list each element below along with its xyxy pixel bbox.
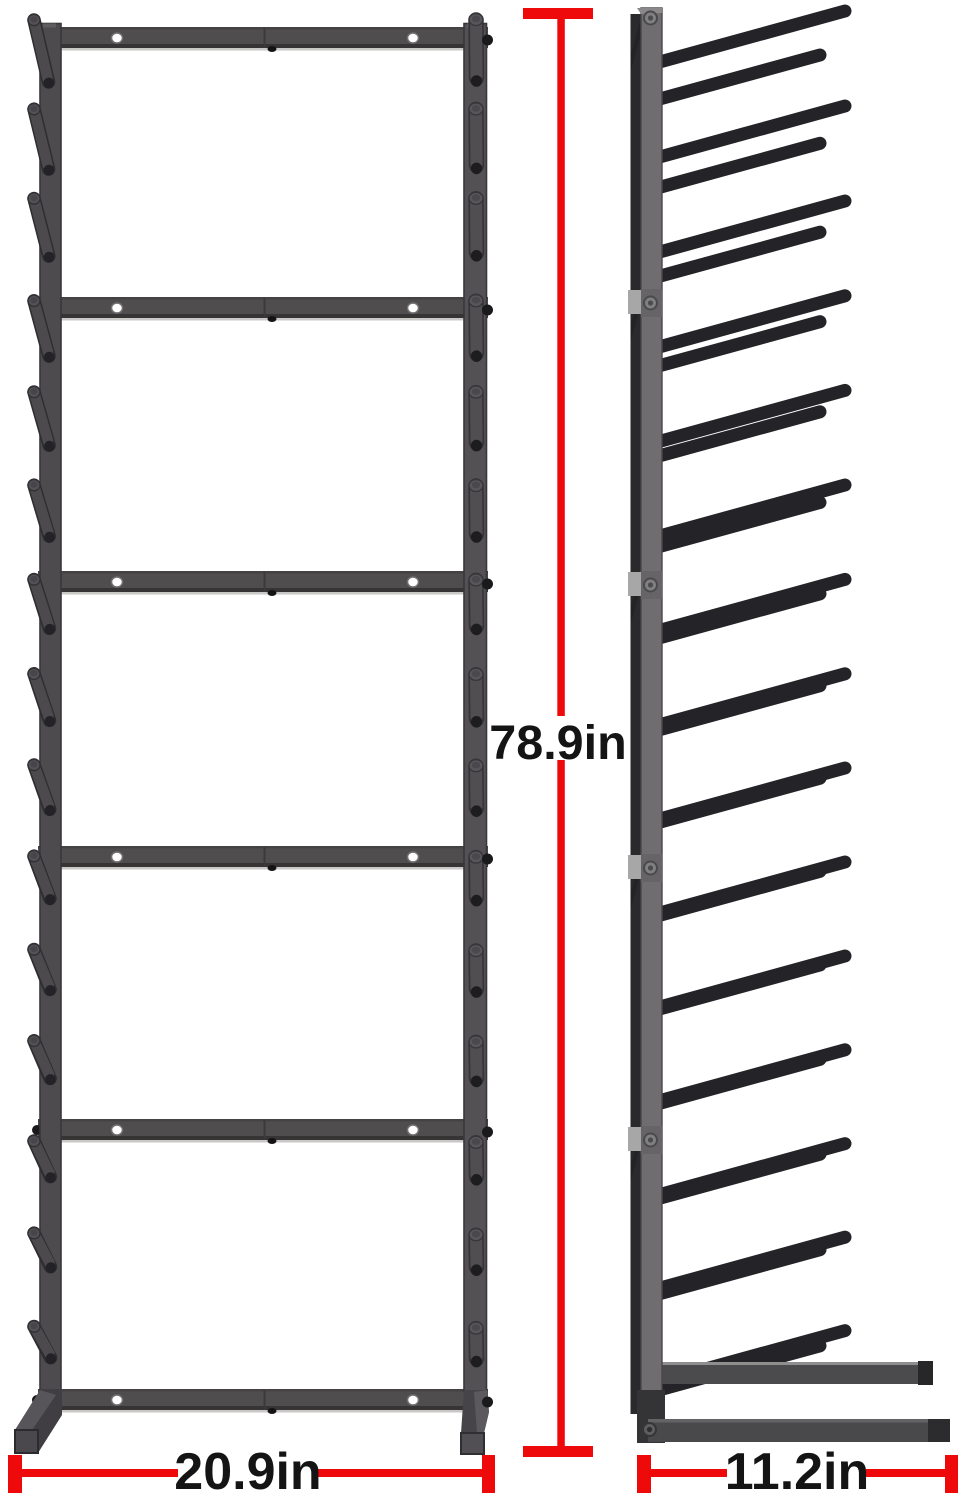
svg-text:20.9in: 20.9in: [174, 1443, 321, 1500]
svg-text:78.9in: 78.9in: [489, 716, 627, 770]
svg-text:11.2in: 11.2in: [725, 1443, 870, 1500]
